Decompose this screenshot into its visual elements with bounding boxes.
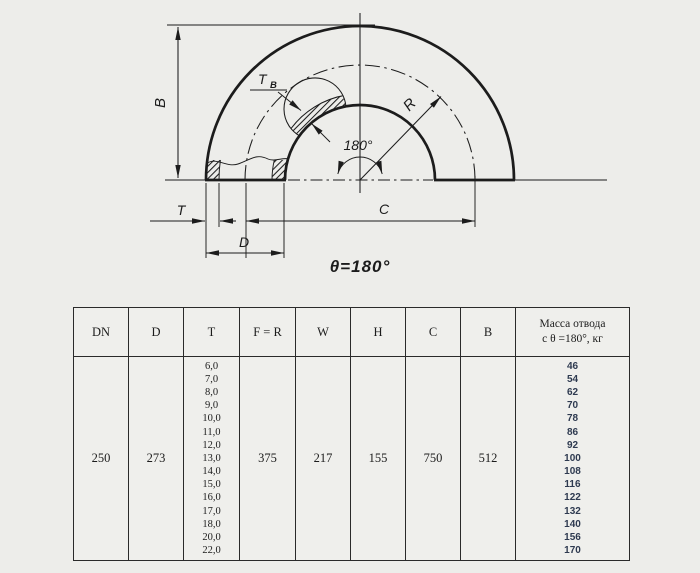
cell-h: 155 <box>351 357 406 560</box>
dimension-d: D <box>206 234 284 253</box>
cell-t-values: 6,0 7,0 8,0 9,0 10,0 11,0 12,0 13,0 14,0… <box>184 357 240 560</box>
wall-thickness-sub-label: В <box>270 80 277 91</box>
t-label: T <box>177 202 187 218</box>
wall-detail-bubble <box>284 78 355 143</box>
table-body-row: 250 273 6,0 7,0 8,0 9,0 10,0 11,0 12,0 1… <box>74 357 629 560</box>
r-label: R <box>400 95 420 115</box>
b-label: B <box>152 98 169 108</box>
col-header-dn: DN <box>74 308 129 356</box>
col-header-w: W <box>296 308 351 356</box>
dimension-table: DN D T F = R W H C B Масса отвода с θ =1… <box>73 307 630 561</box>
cell-c: 750 <box>406 357 461 560</box>
dimension-c: C <box>246 201 475 221</box>
dimension-t: T <box>150 202 236 221</box>
col-header-t: T <box>184 308 240 356</box>
col-header-b: B <box>461 308 516 356</box>
pipe-end-section <box>206 157 289 180</box>
wall-thickness-label: T <box>258 71 268 87</box>
elbow-drawing: T В B R 180° <box>0 0 700 302</box>
c-label: C <box>379 201 390 217</box>
col-header-fr: F = R <box>240 308 296 356</box>
cell-w: 217 <box>296 357 351 560</box>
col-header-h: H <box>351 308 406 356</box>
theta-label: θ=180° <box>330 257 391 276</box>
angle-label: 180° <box>344 137 373 153</box>
col-header-mass: Масса отвода с θ =180°, кг <box>516 308 629 356</box>
table-header-row: DN D T F = R W H C B Масса отвода с θ =1… <box>74 308 629 357</box>
cell-d: 273 <box>129 357 184 560</box>
page: T В B R 180° <box>0 0 700 573</box>
cell-mass-values: 46 54 62 70 78 86 92 100 108 116 122 132… <box>516 357 629 560</box>
d-label: D <box>239 234 249 250</box>
cell-dn: 250 <box>74 357 129 560</box>
col-header-d: D <box>129 308 184 356</box>
cell-fr: 375 <box>240 357 296 560</box>
cell-b: 512 <box>461 357 516 560</box>
col-header-c: C <box>406 308 461 356</box>
